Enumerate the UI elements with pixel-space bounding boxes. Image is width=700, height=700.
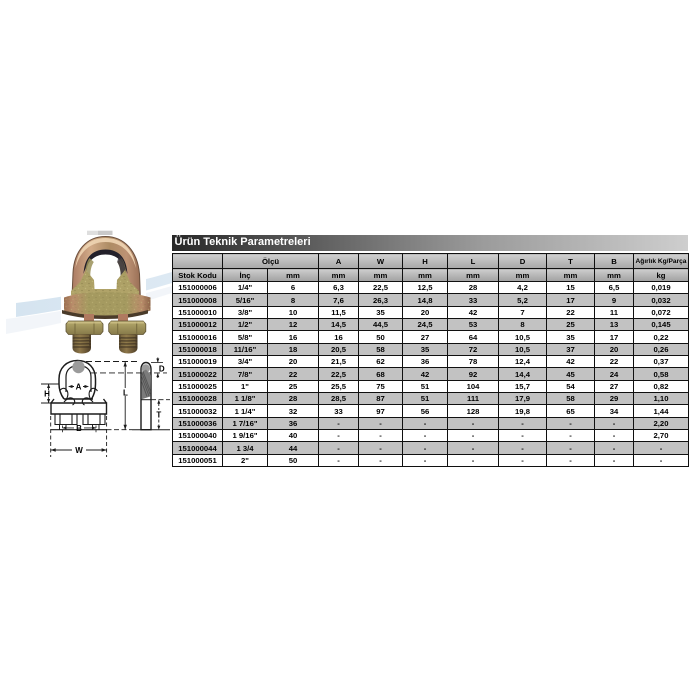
svg-text:A: A (76, 383, 82, 392)
svg-text:W: W (75, 446, 83, 455)
svg-text:L: L (123, 388, 128, 397)
svg-text:H: H (44, 390, 50, 399)
svg-text:T: T (156, 411, 161, 420)
svg-text:B: B (76, 424, 82, 433)
svg-text:D: D (159, 365, 165, 374)
